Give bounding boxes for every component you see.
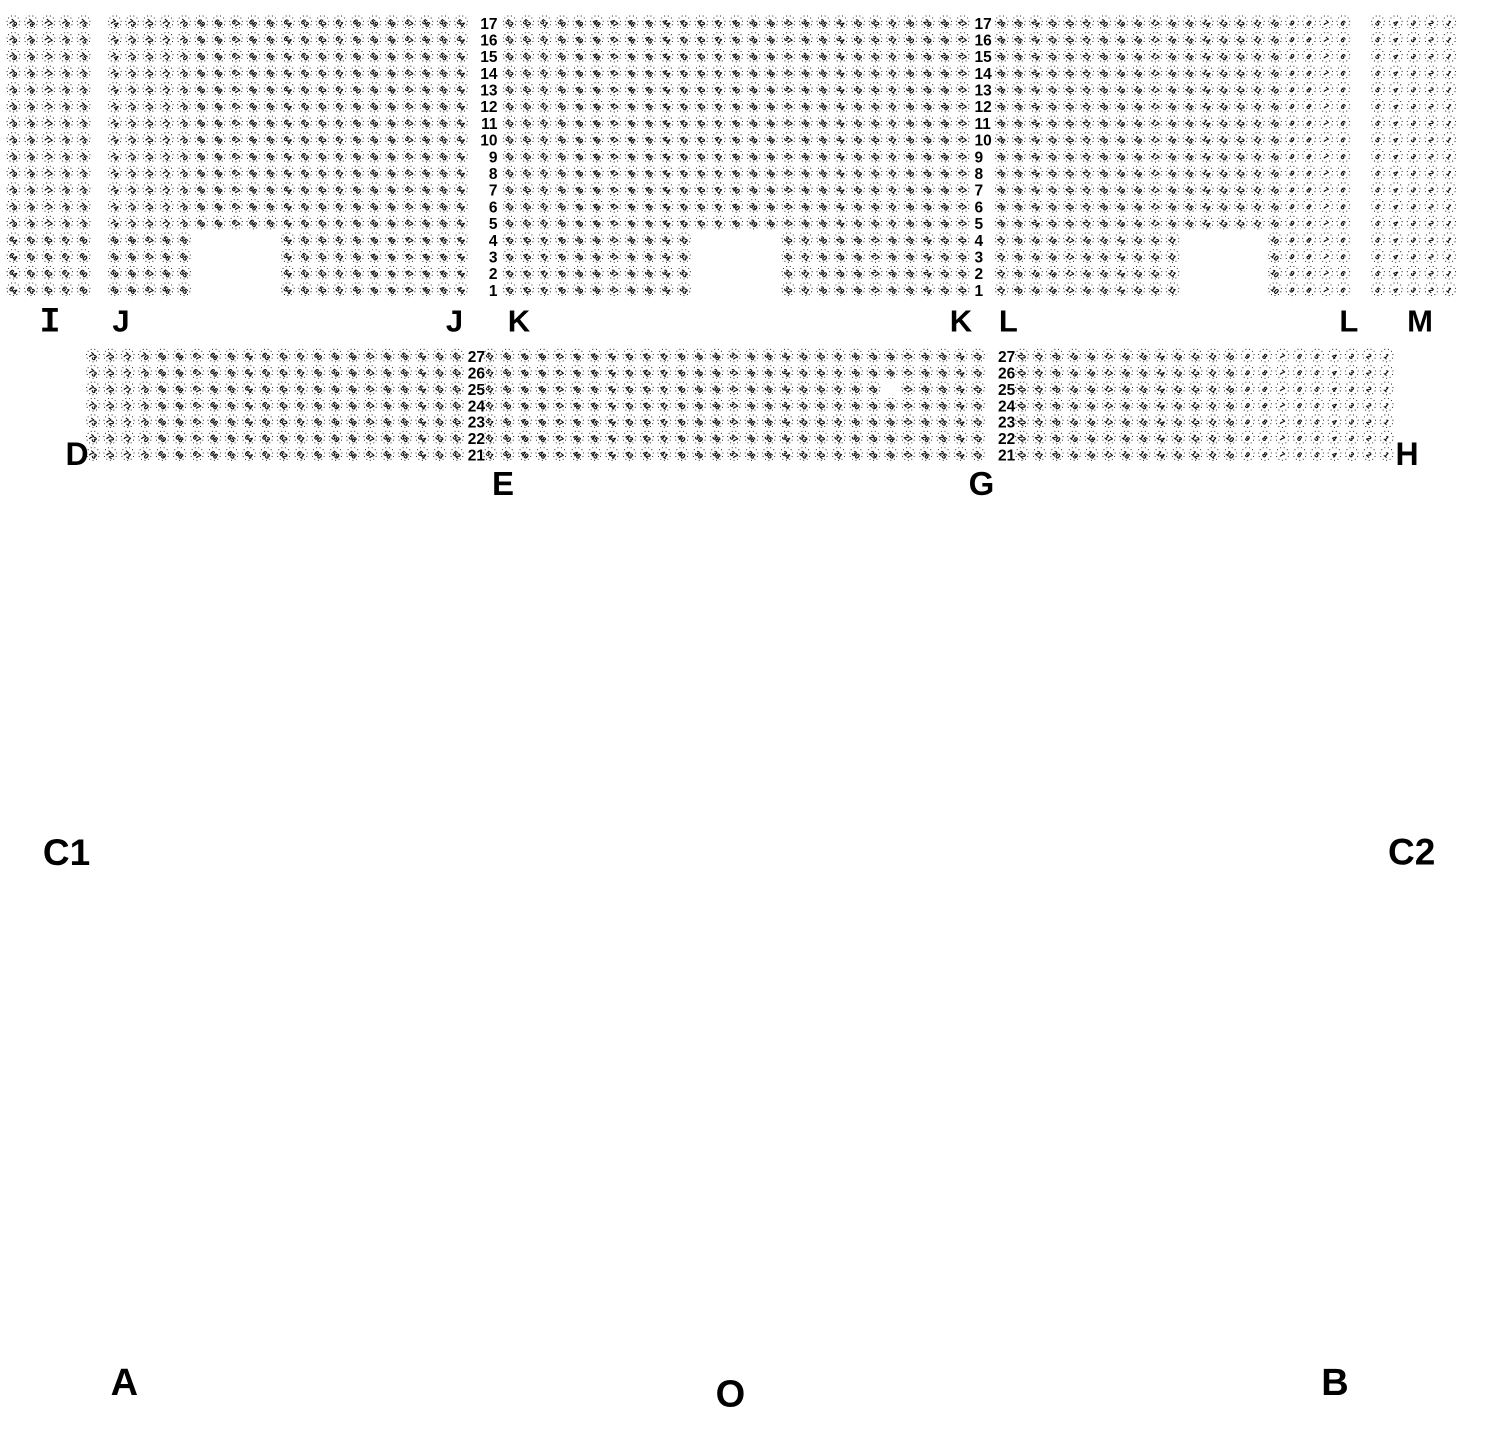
svg-text:1: 1 bbox=[489, 283, 498, 300]
svg-text:11: 11 bbox=[1252, 101, 1264, 113]
svg-text:64: 64 bbox=[282, 167, 295, 180]
svg-text:27: 27 bbox=[468, 349, 485, 366]
svg-text:53: 53 bbox=[504, 101, 516, 113]
svg-text:50: 50 bbox=[556, 101, 568, 113]
svg-text:7: 7 bbox=[1322, 118, 1331, 127]
svg-text:7: 7 bbox=[1322, 68, 1331, 77]
svg-text:8: 8 bbox=[1260, 368, 1269, 377]
svg-text:5: 5 bbox=[1373, 52, 1382, 61]
svg-text:24: 24 bbox=[1030, 51, 1043, 64]
svg-text:5: 5 bbox=[1373, 219, 1382, 228]
svg-text:36: 36 bbox=[800, 101, 812, 113]
svg-text:34: 34 bbox=[835, 67, 848, 80]
svg-text:62: 62 bbox=[316, 101, 328, 113]
svg-text:35: 35 bbox=[817, 101, 829, 113]
svg-text:34: 34 bbox=[780, 449, 793, 462]
svg-text:14: 14 bbox=[1155, 350, 1168, 363]
svg-text:5: 5 bbox=[1312, 384, 1321, 393]
svg-text:24: 24 bbox=[1030, 34, 1043, 47]
svg-text:4: 4 bbox=[1391, 52, 1401, 62]
svg-text:1: 1 bbox=[1445, 219, 1454, 228]
svg-text:63: 63 bbox=[299, 101, 311, 113]
svg-text:3: 3 bbox=[1347, 401, 1356, 410]
svg-text:7: 7 bbox=[1278, 401, 1287, 410]
svg-text:6: 6 bbox=[1339, 102, 1348, 111]
svg-text:44: 44 bbox=[660, 67, 673, 80]
svg-text:21: 21 bbox=[1081, 101, 1093, 113]
svg-text:24: 24 bbox=[922, 268, 935, 281]
svg-text:6: 6 bbox=[1339, 219, 1348, 228]
svg-text:25: 25 bbox=[1013, 101, 1025, 113]
svg-text:9: 9 bbox=[1287, 68, 1296, 77]
svg-text:5: 5 bbox=[1373, 18, 1382, 27]
svg-text:16: 16 bbox=[480, 33, 498, 50]
svg-text:7: 7 bbox=[1322, 219, 1331, 228]
svg-text:7: 7 bbox=[1322, 152, 1331, 161]
svg-text:64: 64 bbox=[7, 251, 20, 264]
svg-text:54: 54 bbox=[282, 251, 295, 264]
svg-text:14: 14 bbox=[1155, 367, 1168, 380]
svg-text:74: 74 bbox=[109, 67, 122, 80]
svg-text:3: 3 bbox=[1409, 52, 1418, 61]
svg-text:15: 15 bbox=[1183, 101, 1195, 113]
svg-text:3: 3 bbox=[1409, 102, 1418, 111]
svg-text:1: 1 bbox=[1445, 35, 1454, 44]
svg-text:34: 34 bbox=[835, 134, 848, 147]
svg-text:57: 57 bbox=[403, 101, 415, 113]
svg-text:12: 12 bbox=[975, 99, 992, 116]
svg-text:14: 14 bbox=[1115, 284, 1128, 297]
svg-text:54: 54 bbox=[416, 432, 429, 445]
svg-text:59: 59 bbox=[368, 101, 380, 113]
svg-text:44: 44 bbox=[606, 400, 619, 413]
svg-text:44: 44 bbox=[606, 367, 619, 380]
svg-text:26: 26 bbox=[468, 366, 486, 383]
svg-text:24: 24 bbox=[954, 383, 967, 396]
svg-text:2: 2 bbox=[1427, 252, 1436, 261]
svg-text:G: G bbox=[969, 465, 995, 502]
svg-text:14: 14 bbox=[1115, 234, 1128, 247]
svg-text:8: 8 bbox=[1260, 450, 1269, 459]
svg-text:8: 8 bbox=[1260, 401, 1269, 410]
svg-text:78: 78 bbox=[25, 101, 37, 113]
svg-text:4: 4 bbox=[489, 233, 498, 250]
svg-text:2: 2 bbox=[1365, 450, 1374, 459]
svg-text:21: 21 bbox=[468, 448, 486, 465]
svg-text:6: 6 bbox=[1295, 368, 1304, 377]
svg-text:24: 24 bbox=[954, 367, 967, 380]
svg-text:3: 3 bbox=[1347, 450, 1356, 459]
svg-text:24: 24 bbox=[954, 350, 967, 363]
svg-text:4: 4 bbox=[1391, 269, 1401, 279]
svg-text:6: 6 bbox=[1339, 85, 1348, 94]
svg-text:64: 64 bbox=[7, 268, 20, 281]
svg-text:64: 64 bbox=[282, 151, 295, 164]
svg-text:1: 1 bbox=[1445, 52, 1454, 61]
svg-text:44: 44 bbox=[660, 134, 673, 147]
svg-text:6: 6 bbox=[1339, 68, 1348, 77]
svg-text:7: 7 bbox=[1278, 434, 1287, 443]
svg-text:8: 8 bbox=[1304, 185, 1313, 194]
svg-text:4: 4 bbox=[1391, 185, 1401, 195]
svg-text:2: 2 bbox=[1427, 219, 1436, 228]
svg-text:8: 8 bbox=[1304, 135, 1313, 144]
svg-text:6: 6 bbox=[1339, 269, 1348, 278]
svg-text:8: 8 bbox=[975, 166, 984, 183]
svg-text:24: 24 bbox=[922, 251, 935, 264]
svg-text:24: 24 bbox=[468, 398, 486, 415]
svg-text:24: 24 bbox=[1030, 134, 1043, 147]
svg-text:34: 34 bbox=[835, 101, 848, 114]
svg-text:54: 54 bbox=[455, 117, 468, 130]
svg-text:44: 44 bbox=[455, 234, 468, 247]
svg-text:54: 54 bbox=[416, 383, 429, 396]
svg-text:5: 5 bbox=[1312, 417, 1321, 426]
svg-text:34: 34 bbox=[835, 84, 848, 97]
svg-text:31: 31 bbox=[887, 101, 899, 113]
svg-text:38: 38 bbox=[765, 101, 777, 113]
svg-text:3: 3 bbox=[1347, 368, 1356, 377]
svg-text:2: 2 bbox=[1427, 85, 1436, 94]
svg-text:23: 23 bbox=[998, 415, 1016, 432]
svg-text:64: 64 bbox=[243, 367, 256, 380]
svg-text:54: 54 bbox=[455, 17, 468, 30]
svg-text:C1: C1 bbox=[43, 832, 90, 873]
svg-text:6: 6 bbox=[1339, 35, 1348, 44]
svg-text:24: 24 bbox=[1030, 167, 1043, 180]
svg-text:73: 73 bbox=[126, 101, 138, 113]
svg-text:14: 14 bbox=[1155, 383, 1168, 396]
svg-text:65: 65 bbox=[264, 101, 276, 113]
svg-text:9: 9 bbox=[1243, 450, 1252, 459]
svg-text:64: 64 bbox=[282, 34, 295, 47]
svg-text:26: 26 bbox=[996, 101, 1008, 113]
svg-text:1: 1 bbox=[1445, 152, 1454, 161]
svg-text:2: 2 bbox=[1365, 401, 1374, 410]
svg-text:2: 2 bbox=[1427, 152, 1436, 161]
svg-text:55: 55 bbox=[438, 101, 450, 113]
svg-text:8: 8 bbox=[1260, 384, 1269, 393]
svg-text:34: 34 bbox=[780, 400, 793, 413]
svg-text:27: 27 bbox=[998, 349, 1015, 366]
svg-text:3: 3 bbox=[1409, 85, 1418, 94]
svg-text:1: 1 bbox=[1445, 169, 1454, 178]
svg-text:54: 54 bbox=[282, 268, 295, 281]
svg-text:7: 7 bbox=[1322, 135, 1331, 144]
svg-text:3: 3 bbox=[1409, 118, 1418, 127]
svg-text:7: 7 bbox=[1322, 285, 1331, 294]
svg-text:5: 5 bbox=[489, 216, 498, 233]
svg-text:14: 14 bbox=[1201, 217, 1214, 230]
svg-text:34: 34 bbox=[660, 284, 673, 297]
svg-text:7: 7 bbox=[1322, 185, 1331, 194]
svg-text:3: 3 bbox=[1347, 417, 1356, 426]
svg-text:3: 3 bbox=[1347, 434, 1356, 443]
svg-text:24: 24 bbox=[922, 234, 935, 247]
svg-text:34: 34 bbox=[660, 234, 673, 247]
svg-text:1: 1 bbox=[1445, 118, 1454, 127]
svg-text:4: 4 bbox=[1330, 352, 1340, 362]
svg-text:8: 8 bbox=[1304, 252, 1313, 261]
svg-text:44: 44 bbox=[660, 51, 673, 64]
svg-text:9: 9 bbox=[1287, 252, 1296, 261]
svg-text:54: 54 bbox=[416, 350, 429, 363]
svg-text:14: 14 bbox=[1155, 416, 1168, 429]
svg-text:5: 5 bbox=[1373, 269, 1382, 278]
svg-text:1: 1 bbox=[1445, 135, 1454, 144]
svg-text:6: 6 bbox=[1339, 18, 1348, 27]
svg-text:70: 70 bbox=[178, 101, 190, 113]
svg-text:74: 74 bbox=[109, 34, 122, 47]
svg-text:7: 7 bbox=[1278, 450, 1287, 459]
svg-text:2: 2 bbox=[1365, 384, 1374, 393]
svg-text:54: 54 bbox=[416, 400, 429, 413]
svg-text:64: 64 bbox=[7, 284, 20, 297]
svg-text:6: 6 bbox=[1295, 450, 1304, 459]
svg-text:24: 24 bbox=[954, 416, 967, 429]
svg-text:5: 5 bbox=[1373, 185, 1382, 194]
svg-text:9: 9 bbox=[1287, 152, 1296, 161]
svg-text:64: 64 bbox=[282, 51, 295, 64]
svg-text:54: 54 bbox=[282, 284, 295, 297]
svg-text:8: 8 bbox=[1304, 285, 1313, 294]
svg-text:72: 72 bbox=[143, 101, 155, 113]
svg-text:4: 4 bbox=[1391, 118, 1401, 128]
svg-text:34: 34 bbox=[835, 184, 848, 197]
svg-text:1: 1 bbox=[1382, 401, 1391, 410]
svg-text:D: D bbox=[65, 436, 88, 472]
svg-text:5: 5 bbox=[1312, 434, 1321, 443]
svg-text:75: 75 bbox=[77, 101, 89, 113]
svg-text:I: I bbox=[39, 303, 60, 343]
svg-text:33: 33 bbox=[852, 101, 864, 113]
svg-text:1: 1 bbox=[1382, 450, 1391, 459]
svg-text:3: 3 bbox=[1409, 169, 1418, 178]
svg-text:24: 24 bbox=[922, 284, 935, 297]
svg-text:44: 44 bbox=[660, 184, 673, 197]
svg-text:4: 4 bbox=[1391, 68, 1401, 78]
svg-text:71: 71 bbox=[161, 101, 173, 113]
svg-text:34: 34 bbox=[835, 51, 848, 64]
svg-text:14: 14 bbox=[480, 66, 498, 83]
svg-text:74: 74 bbox=[109, 134, 122, 147]
svg-text:10: 10 bbox=[975, 133, 992, 150]
svg-text:69: 69 bbox=[195, 101, 207, 113]
svg-text:64: 64 bbox=[243, 383, 256, 396]
svg-text:9: 9 bbox=[1243, 384, 1252, 393]
svg-text:25: 25 bbox=[998, 382, 1016, 399]
svg-text:41: 41 bbox=[713, 101, 725, 113]
svg-text:8: 8 bbox=[489, 166, 498, 183]
svg-text:24: 24 bbox=[1030, 151, 1043, 164]
svg-text:7: 7 bbox=[1322, 169, 1331, 178]
svg-text:47: 47 bbox=[608, 101, 620, 113]
svg-text:14: 14 bbox=[1155, 432, 1168, 445]
svg-text:64: 64 bbox=[282, 217, 295, 230]
svg-text:1: 1 bbox=[1445, 18, 1454, 27]
svg-text:11: 11 bbox=[975, 116, 992, 133]
svg-text:5: 5 bbox=[1373, 169, 1382, 178]
svg-text:1: 1 bbox=[1382, 417, 1391, 426]
svg-text:14: 14 bbox=[1115, 251, 1128, 264]
svg-text:1: 1 bbox=[1382, 384, 1391, 393]
svg-text:2: 2 bbox=[1365, 368, 1374, 377]
svg-text:74: 74 bbox=[109, 17, 122, 30]
svg-text:6: 6 bbox=[1339, 118, 1348, 127]
svg-text:4: 4 bbox=[1330, 401, 1340, 411]
svg-text:1: 1 bbox=[1445, 68, 1454, 77]
svg-text:2: 2 bbox=[1427, 35, 1436, 44]
svg-text:2: 2 bbox=[1427, 102, 1436, 111]
svg-text:2: 2 bbox=[1427, 135, 1436, 144]
svg-text:74: 74 bbox=[109, 101, 122, 114]
svg-text:14: 14 bbox=[1201, 84, 1214, 97]
svg-text:5: 5 bbox=[1373, 202, 1382, 211]
svg-text:7: 7 bbox=[1322, 102, 1331, 111]
svg-text:2: 2 bbox=[975, 266, 984, 283]
svg-text:6: 6 bbox=[1295, 434, 1304, 443]
svg-text:5: 5 bbox=[1312, 401, 1321, 410]
svg-text:3: 3 bbox=[1347, 384, 1356, 393]
svg-text:64: 64 bbox=[243, 416, 256, 429]
svg-text:54: 54 bbox=[455, 101, 468, 114]
svg-text:34: 34 bbox=[835, 17, 848, 30]
svg-text:2: 2 bbox=[1365, 352, 1374, 361]
svg-text:54: 54 bbox=[416, 367, 429, 380]
svg-text:22: 22 bbox=[468, 431, 485, 448]
svg-text:44: 44 bbox=[660, 101, 673, 114]
svg-text:64: 64 bbox=[7, 234, 20, 247]
svg-text:14: 14 bbox=[1115, 268, 1128, 281]
svg-text:44: 44 bbox=[660, 17, 673, 30]
svg-text:44: 44 bbox=[455, 251, 468, 264]
svg-text:8: 8 bbox=[1304, 152, 1313, 161]
svg-text:1: 1 bbox=[975, 283, 984, 300]
svg-text:37: 37 bbox=[782, 101, 794, 113]
svg-text:34: 34 bbox=[835, 151, 848, 164]
svg-text:9: 9 bbox=[1287, 185, 1296, 194]
svg-text:44: 44 bbox=[606, 449, 619, 462]
svg-text:1: 1 bbox=[1445, 102, 1454, 111]
svg-text:6: 6 bbox=[1339, 285, 1348, 294]
svg-text:5: 5 bbox=[1373, 235, 1382, 244]
svg-text:1: 1 bbox=[1445, 85, 1454, 94]
svg-text:11: 11 bbox=[481, 116, 498, 133]
svg-text:24: 24 bbox=[1030, 101, 1043, 114]
svg-text:22: 22 bbox=[1064, 101, 1076, 113]
svg-text:54: 54 bbox=[455, 184, 468, 197]
svg-text:54: 54 bbox=[455, 217, 468, 230]
svg-text:9: 9 bbox=[1287, 219, 1296, 228]
svg-text:2: 2 bbox=[1427, 285, 1436, 294]
svg-text:J: J bbox=[446, 304, 463, 339]
svg-text:46: 46 bbox=[625, 101, 637, 113]
svg-text:34: 34 bbox=[835, 34, 848, 47]
svg-text:5: 5 bbox=[1312, 450, 1321, 459]
svg-text:8: 8 bbox=[1304, 52, 1313, 61]
svg-text:49: 49 bbox=[573, 101, 585, 113]
svg-text:1: 1 bbox=[1445, 235, 1454, 244]
svg-text:6: 6 bbox=[1295, 352, 1304, 361]
svg-text:9: 9 bbox=[1287, 269, 1296, 278]
svg-text:24: 24 bbox=[1030, 184, 1043, 197]
svg-text:64: 64 bbox=[282, 117, 295, 130]
svg-text:30: 30 bbox=[904, 101, 916, 113]
svg-text:7: 7 bbox=[1322, 252, 1331, 261]
svg-text:E: E bbox=[492, 465, 514, 502]
svg-text:34: 34 bbox=[835, 167, 848, 180]
svg-text:13: 13 bbox=[1218, 101, 1230, 113]
svg-text:64: 64 bbox=[282, 84, 295, 97]
svg-text:9: 9 bbox=[975, 149, 984, 166]
svg-text:27: 27 bbox=[956, 101, 968, 113]
svg-text:3: 3 bbox=[1409, 219, 1418, 228]
svg-text:6: 6 bbox=[1339, 235, 1348, 244]
svg-text:3: 3 bbox=[1409, 285, 1418, 294]
svg-text:3: 3 bbox=[1347, 352, 1356, 361]
svg-text:4: 4 bbox=[1391, 135, 1401, 145]
svg-text:7: 7 bbox=[1322, 35, 1331, 44]
svg-text:7: 7 bbox=[1322, 202, 1331, 211]
svg-text:O: O bbox=[716, 1373, 746, 1415]
svg-text:K: K bbox=[950, 304, 973, 339]
svg-text:2: 2 bbox=[1427, 235, 1436, 244]
svg-text:8: 8 bbox=[1304, 169, 1313, 178]
svg-text:54: 54 bbox=[455, 84, 468, 97]
svg-text:8: 8 bbox=[1304, 68, 1313, 77]
svg-text:24: 24 bbox=[998, 398, 1016, 415]
svg-text:2: 2 bbox=[1427, 68, 1436, 77]
svg-text:40: 40 bbox=[730, 101, 742, 113]
svg-text:6: 6 bbox=[1295, 401, 1304, 410]
svg-text:4: 4 bbox=[1391, 152, 1401, 162]
svg-text:3: 3 bbox=[1409, 202, 1418, 211]
svg-text:4: 4 bbox=[1391, 252, 1401, 262]
svg-text:9: 9 bbox=[1243, 417, 1252, 426]
svg-text:17: 17 bbox=[1149, 101, 1161, 113]
svg-text:5: 5 bbox=[1312, 368, 1321, 377]
svg-text:54: 54 bbox=[455, 134, 468, 147]
svg-text:44: 44 bbox=[606, 383, 619, 396]
svg-text:24: 24 bbox=[954, 400, 967, 413]
svg-text:3: 3 bbox=[1409, 269, 1418, 278]
svg-text:2: 2 bbox=[1427, 18, 1436, 27]
svg-text:66: 66 bbox=[247, 101, 259, 113]
svg-text:54: 54 bbox=[455, 167, 468, 180]
svg-text:K: K bbox=[508, 304, 531, 339]
svg-text:19: 19 bbox=[1115, 101, 1127, 113]
svg-text:12: 12 bbox=[480, 99, 497, 116]
svg-text:6: 6 bbox=[1339, 135, 1348, 144]
svg-text:8: 8 bbox=[1304, 219, 1313, 228]
svg-text:2: 2 bbox=[1427, 52, 1436, 61]
svg-text:9: 9 bbox=[1287, 118, 1296, 127]
svg-text:9: 9 bbox=[489, 149, 498, 166]
svg-text:7: 7 bbox=[1322, 52, 1331, 61]
svg-text:4: 4 bbox=[1330, 368, 1340, 378]
svg-text:9: 9 bbox=[1243, 352, 1252, 361]
svg-text:14: 14 bbox=[975, 66, 993, 83]
svg-text:9: 9 bbox=[1243, 368, 1252, 377]
svg-text:14: 14 bbox=[1201, 184, 1214, 197]
svg-text:1: 1 bbox=[1445, 202, 1454, 211]
svg-text:9: 9 bbox=[1287, 135, 1296, 144]
svg-text:22: 22 bbox=[998, 431, 1015, 448]
svg-text:14: 14 bbox=[1201, 17, 1214, 30]
svg-text:58: 58 bbox=[386, 101, 398, 113]
svg-text:74: 74 bbox=[109, 151, 122, 164]
svg-text:32: 32 bbox=[869, 101, 881, 113]
